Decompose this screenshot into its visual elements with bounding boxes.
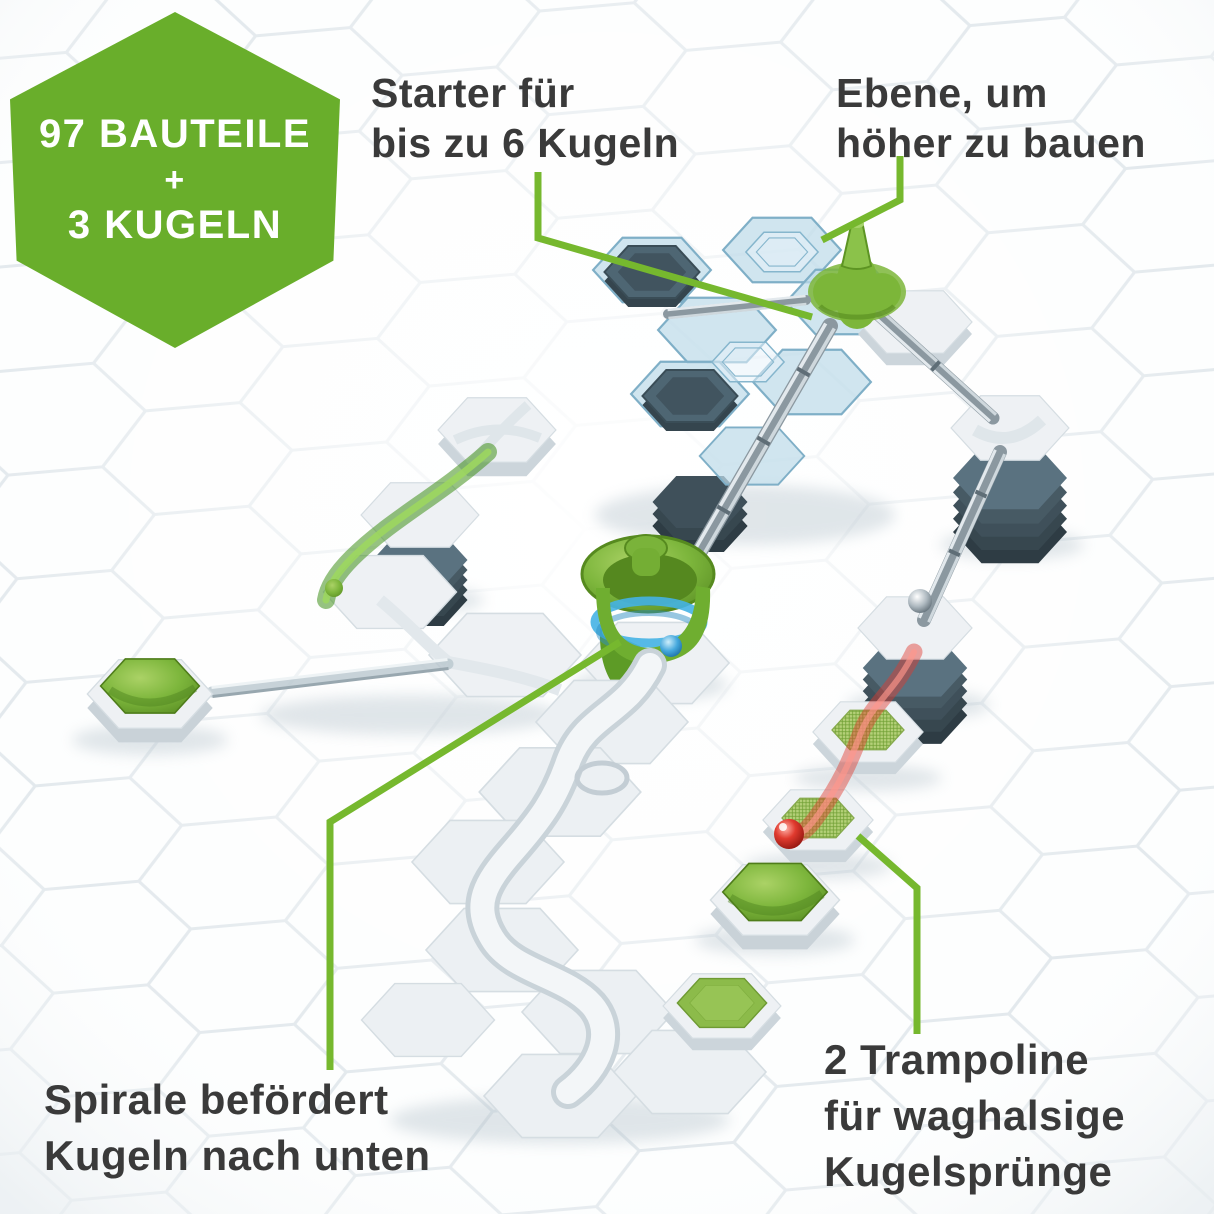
green-marble xyxy=(325,579,343,597)
badge-plus: + xyxy=(164,158,185,202)
product-annotation-image: 97 BAUTEILE + 3 KUGELN Starter für bis z… xyxy=(0,0,1214,1214)
hex-tower xyxy=(951,396,1069,563)
callout-starter-line1: Starter für xyxy=(371,68,679,118)
silver-marble xyxy=(908,589,932,613)
callout-trampoline-line3: Kugelsprünge xyxy=(824,1144,1125,1200)
callout-spiral-line1: Spirale befördert xyxy=(44,1072,431,1128)
callout-level-line2: höher zu bauen xyxy=(836,118,1146,168)
red-marble xyxy=(774,819,804,849)
callout-trampoline-line1: 2 Trampoline xyxy=(824,1032,1125,1088)
callout-starter: Starter für bis zu 6 Kugeln xyxy=(371,68,679,168)
callout-trampoline-line2: für waghalsige xyxy=(824,1088,1125,1144)
callout-trampoline: 2 Trampoline für waghalsige Kugelsprünge xyxy=(824,1032,1125,1200)
callout-spiral: Spirale befördert Kugeln nach unten xyxy=(44,1072,431,1184)
callout-level-line1: Ebene, um xyxy=(836,68,1146,118)
badge-line-2: 3 KUGELN xyxy=(68,202,282,249)
blue-marble xyxy=(660,635,682,657)
badge-line-1: 97 BAUTEILE xyxy=(39,111,311,158)
callout-level: Ebene, um höher zu bauen xyxy=(836,68,1146,168)
callout-spiral-line2: Kugeln nach unten xyxy=(44,1128,431,1184)
callout-starter-line2: bis zu 6 Kugeln xyxy=(371,118,679,168)
